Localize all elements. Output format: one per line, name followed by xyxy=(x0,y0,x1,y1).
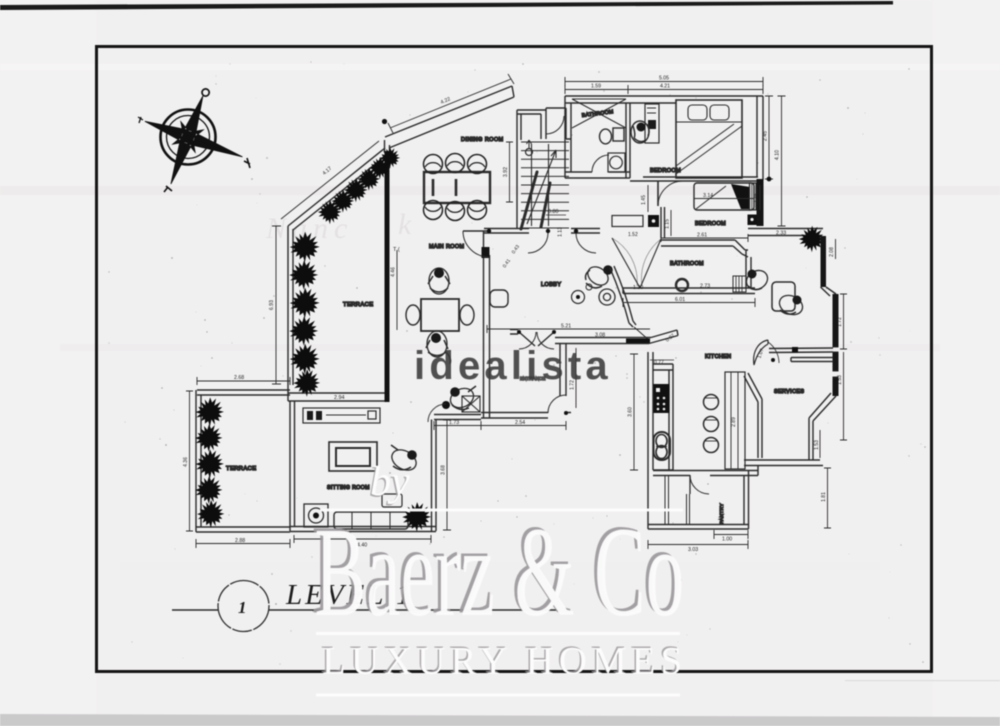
svg-text:2.89: 2.89 xyxy=(731,417,737,427)
svg-text:3.08: 3.08 xyxy=(595,333,605,339)
svg-text:1.20: 1.20 xyxy=(633,285,643,291)
svg-text:1.45: 1.45 xyxy=(641,195,647,205)
svg-text:1.53: 1.53 xyxy=(837,375,843,385)
svg-text:3.03: 3.03 xyxy=(688,547,698,553)
svg-text:3.68: 3.68 xyxy=(441,465,447,475)
svg-text:DINING ROOM: DINING ROOM xyxy=(461,137,504,143)
svg-text:1.81: 1.81 xyxy=(821,492,827,502)
svg-text:1.72: 1.72 xyxy=(837,317,843,327)
svg-text:4.46: 4.46 xyxy=(391,267,397,277)
svg-text:1.00: 1.00 xyxy=(722,537,732,543)
svg-text:2.61: 2.61 xyxy=(697,233,707,239)
svg-text:TERRACE: TERRACE xyxy=(226,466,257,472)
svg-text:2.54: 2.54 xyxy=(515,420,525,426)
svg-text:0.80: 0.80 xyxy=(548,209,559,215)
svg-text:4.10: 4.10 xyxy=(775,150,781,160)
svg-text:3.92: 3.92 xyxy=(503,167,509,177)
svg-text:3.60: 3.60 xyxy=(628,407,634,417)
svg-text:2.94: 2.94 xyxy=(334,395,345,401)
svg-text:Baerz & Co: Baerz & Co xyxy=(315,501,685,643)
svg-text:SITTING ROOM: SITTING ROOM xyxy=(327,485,370,491)
svg-text:LOBBY: LOBBY xyxy=(541,282,561,288)
svg-text:SERVICES: SERVICES xyxy=(774,389,804,395)
svg-text:1.53: 1.53 xyxy=(814,440,820,450)
svg-text:BATHROOM: BATHROOM xyxy=(670,261,704,267)
svg-text:1.59: 1.59 xyxy=(591,84,601,90)
svg-text:KITCHEN: KITCHEN xyxy=(705,354,731,360)
svg-text:4.36: 4.36 xyxy=(183,457,189,467)
svg-text:T (: T ( xyxy=(393,247,400,253)
svg-text:4.21: 4.21 xyxy=(660,84,670,90)
svg-text:1.73: 1.73 xyxy=(449,420,459,426)
svg-text:BEDROOM: BEDROOM xyxy=(695,221,726,227)
svg-text:0.77: 0.77 xyxy=(654,360,664,366)
svg-text:6.93: 6.93 xyxy=(269,300,275,310)
svg-text:5.05: 5.05 xyxy=(659,76,669,82)
svg-text:6.01: 6.01 xyxy=(675,297,685,303)
svg-text:1.46: 1.46 xyxy=(754,193,760,203)
svg-text:1.15: 1.15 xyxy=(665,219,671,229)
svg-text:2.68: 2.68 xyxy=(234,375,244,381)
svg-text:idealista: idealista xyxy=(414,344,612,388)
svg-text:2.33: 2.33 xyxy=(776,231,786,237)
svg-text:2.73: 2.73 xyxy=(700,284,710,290)
svg-text:k: k xyxy=(398,208,412,241)
svg-text:5.21: 5.21 xyxy=(561,324,571,330)
svg-text:1.52: 1.52 xyxy=(628,232,638,238)
svg-text:BEDROOM: BEDROOM xyxy=(650,168,681,174)
svg-text:LUXURY HOMES: LUXURY HOMES xyxy=(322,640,687,683)
svg-text:1: 1 xyxy=(238,598,247,617)
svg-text:3.14: 3.14 xyxy=(703,193,713,199)
svg-text:2.08: 2.08 xyxy=(829,247,835,257)
svg-text:MAIN ROOM: MAIN ROOM xyxy=(429,244,464,250)
svg-text:PANTRY: PANTRY xyxy=(719,503,725,524)
svg-text:TERRACE: TERRACE xyxy=(343,302,374,308)
svg-text:1.13: 1.13 xyxy=(558,227,564,237)
svg-text:2.88: 2.88 xyxy=(235,538,245,544)
